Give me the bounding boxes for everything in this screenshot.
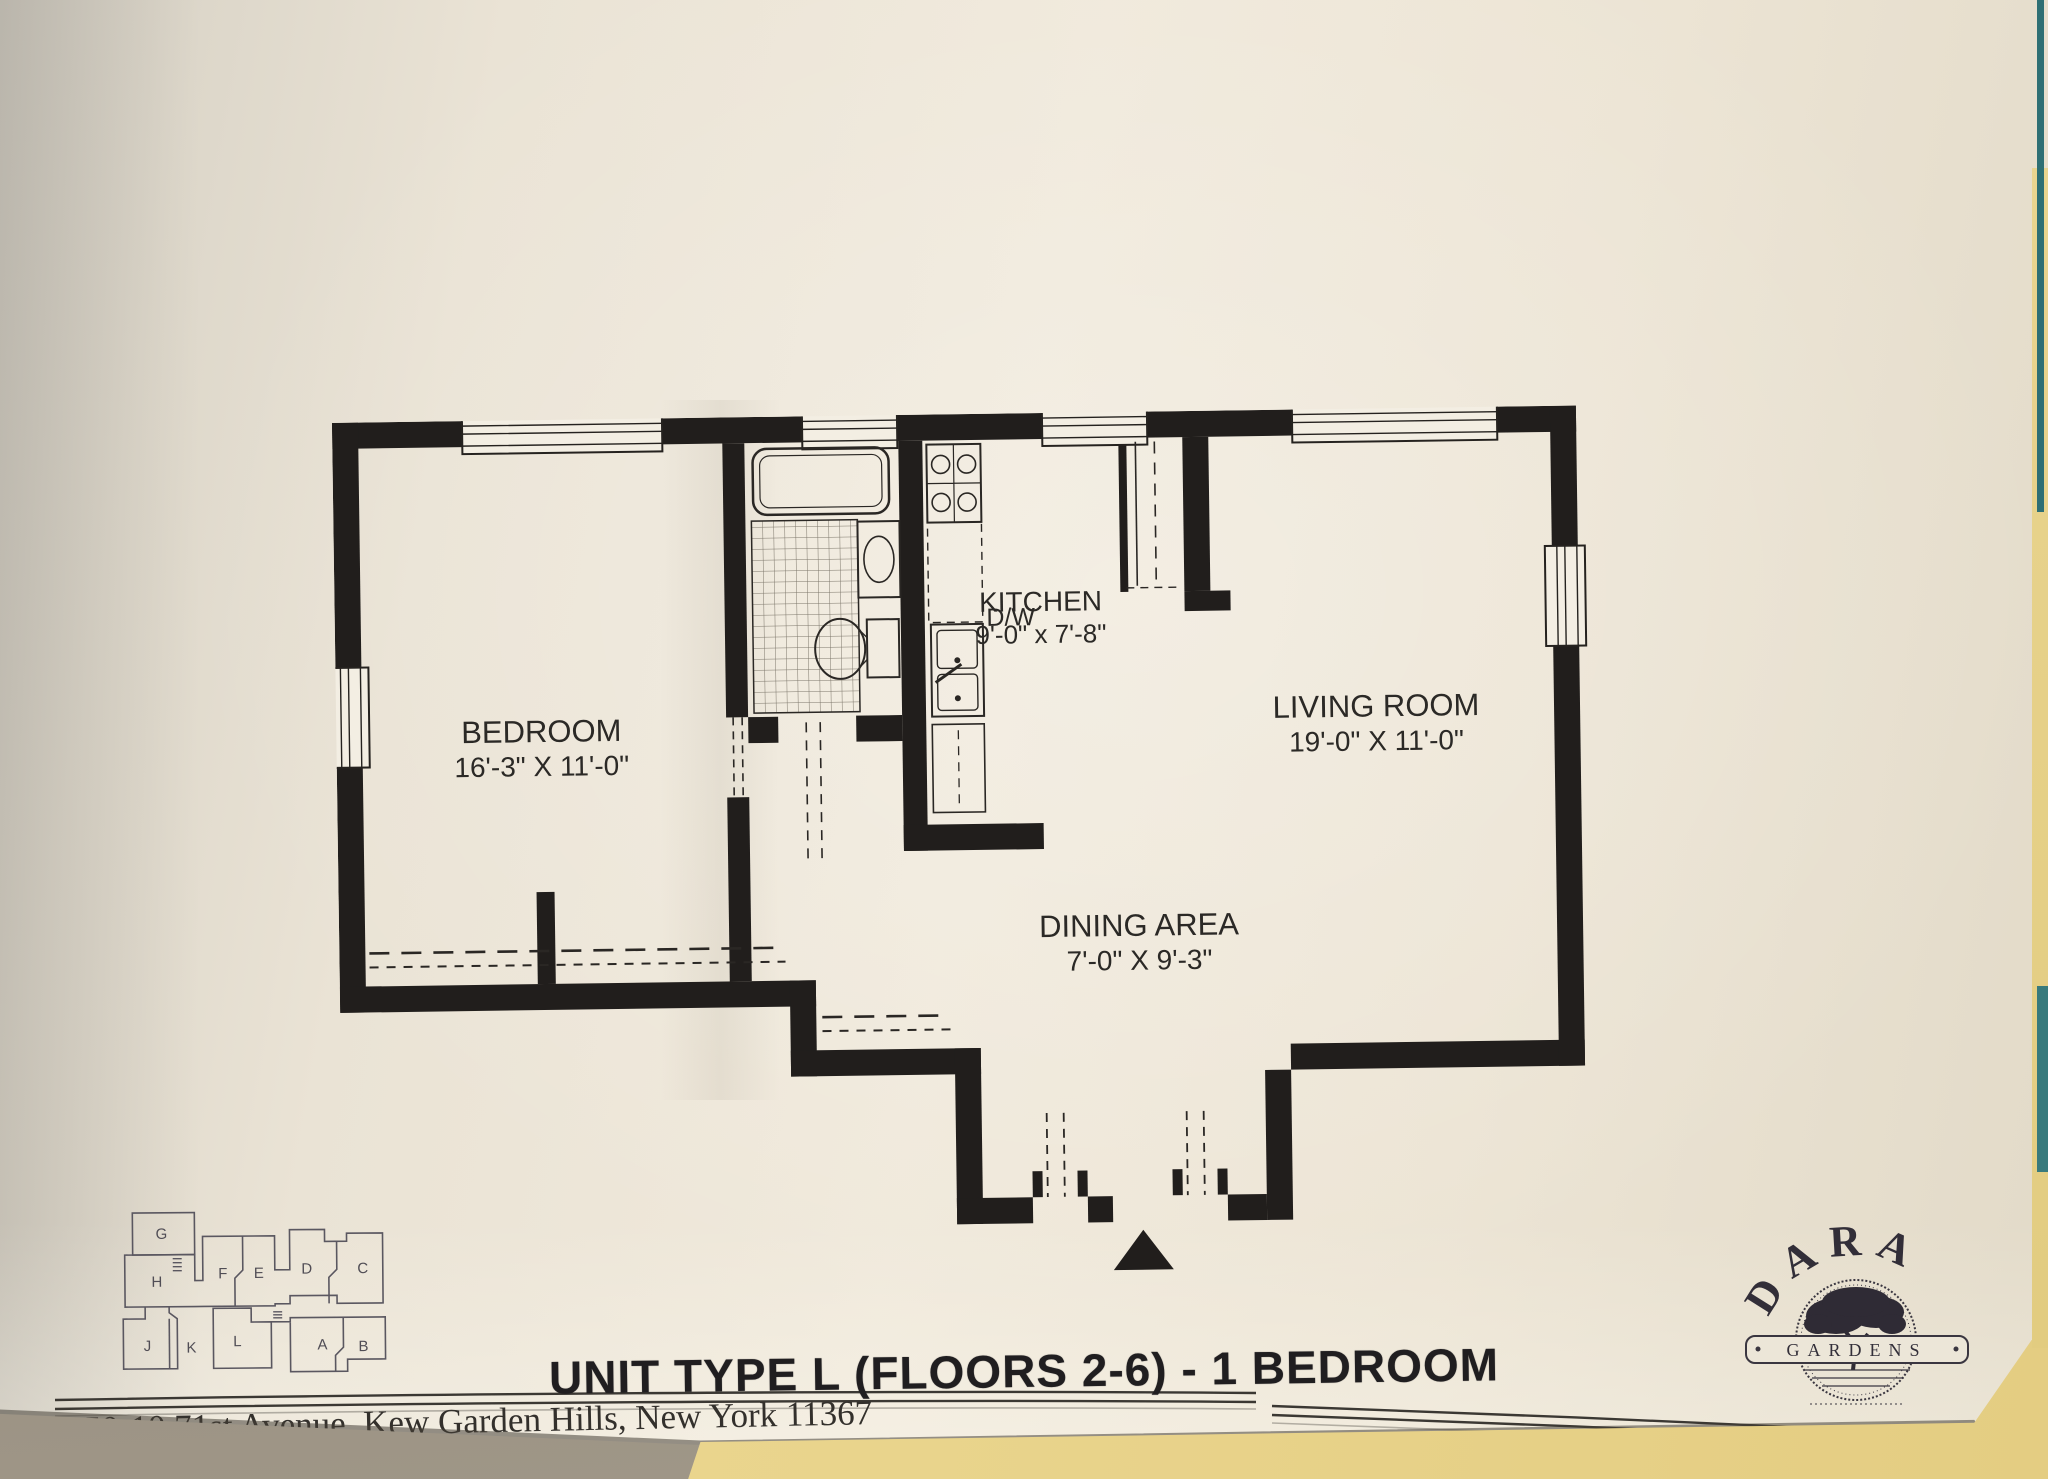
bathroom-window-top: [802, 408, 898, 449]
bathroom-tile-floor: [751, 520, 860, 713]
keymap-unit-label: F: [218, 1265, 227, 1282]
bedroom-window-left: [332, 667, 370, 768]
kitchen-window-top: [1042, 405, 1148, 446]
teal-edge-top: [2037, 0, 2044, 512]
svg-text:LIVING ROOM: LIVING ROOM: [1272, 687, 1479, 725]
photographed-floorplan-page: BEDROOM 16'-3" X 11'-0" KITCHEN 9'-0" x …: [0, 0, 2048, 1479]
bathtub: [752, 447, 889, 515]
keymap-unit-label: G: [156, 1226, 168, 1243]
svg-text:DINING AREA: DINING AREA: [1039, 906, 1240, 944]
living-room-label: LIVING ROOM 19'-0" X 11'-0": [1272, 687, 1480, 758]
teal-edge-mid: [2037, 986, 2048, 1172]
keymap-unit-label: D: [301, 1260, 312, 1277]
living-room-window-top: [1292, 405, 1498, 442]
entry-arrow: [1113, 1229, 1174, 1270]
dishwasher-counter: [927, 522, 982, 623]
living-room-window-right: [1545, 545, 1586, 646]
svg-text:7'-0" X 9'-3": 7'-0" X 9'-3": [1066, 944, 1212, 977]
floorplan-drawing: BEDROOM 16'-3" X 11'-0" KITCHEN 9'-0" x …: [332, 405, 1620, 1297]
kitchen-cabinet: [932, 724, 985, 813]
svg-text:16'-3" X 11'-0": 16'-3" X 11'-0": [454, 750, 629, 783]
bathroom-door-dashes: [806, 722, 822, 860]
svg-text:BEDROOM: BEDROOM: [461, 713, 622, 750]
bedroom-door-dashes: [733, 717, 743, 799]
bedroom-window-top: [462, 411, 663, 454]
dishwasher-label: D/W: [986, 603, 1035, 632]
stove: [926, 444, 981, 523]
walls: [332, 406, 1587, 1233]
keymap-unit-label: H: [151, 1274, 162, 1291]
keymap-unit-label: E: [254, 1265, 264, 1282]
bathroom: [750, 447, 904, 861]
svg-text:19'-0" X 11'-0": 19'-0" X 11'-0": [1289, 724, 1464, 757]
bedroom-label: BEDROOM 16'-3" X 11'-0": [454, 713, 630, 783]
bathroom-sink: [857, 521, 900, 598]
dining-area-label: DINING AREA 7'-0" X 9'-3": [1039, 906, 1240, 977]
keymap-unit-label: C: [357, 1260, 368, 1277]
hall-closet: [1124, 441, 1182, 588]
